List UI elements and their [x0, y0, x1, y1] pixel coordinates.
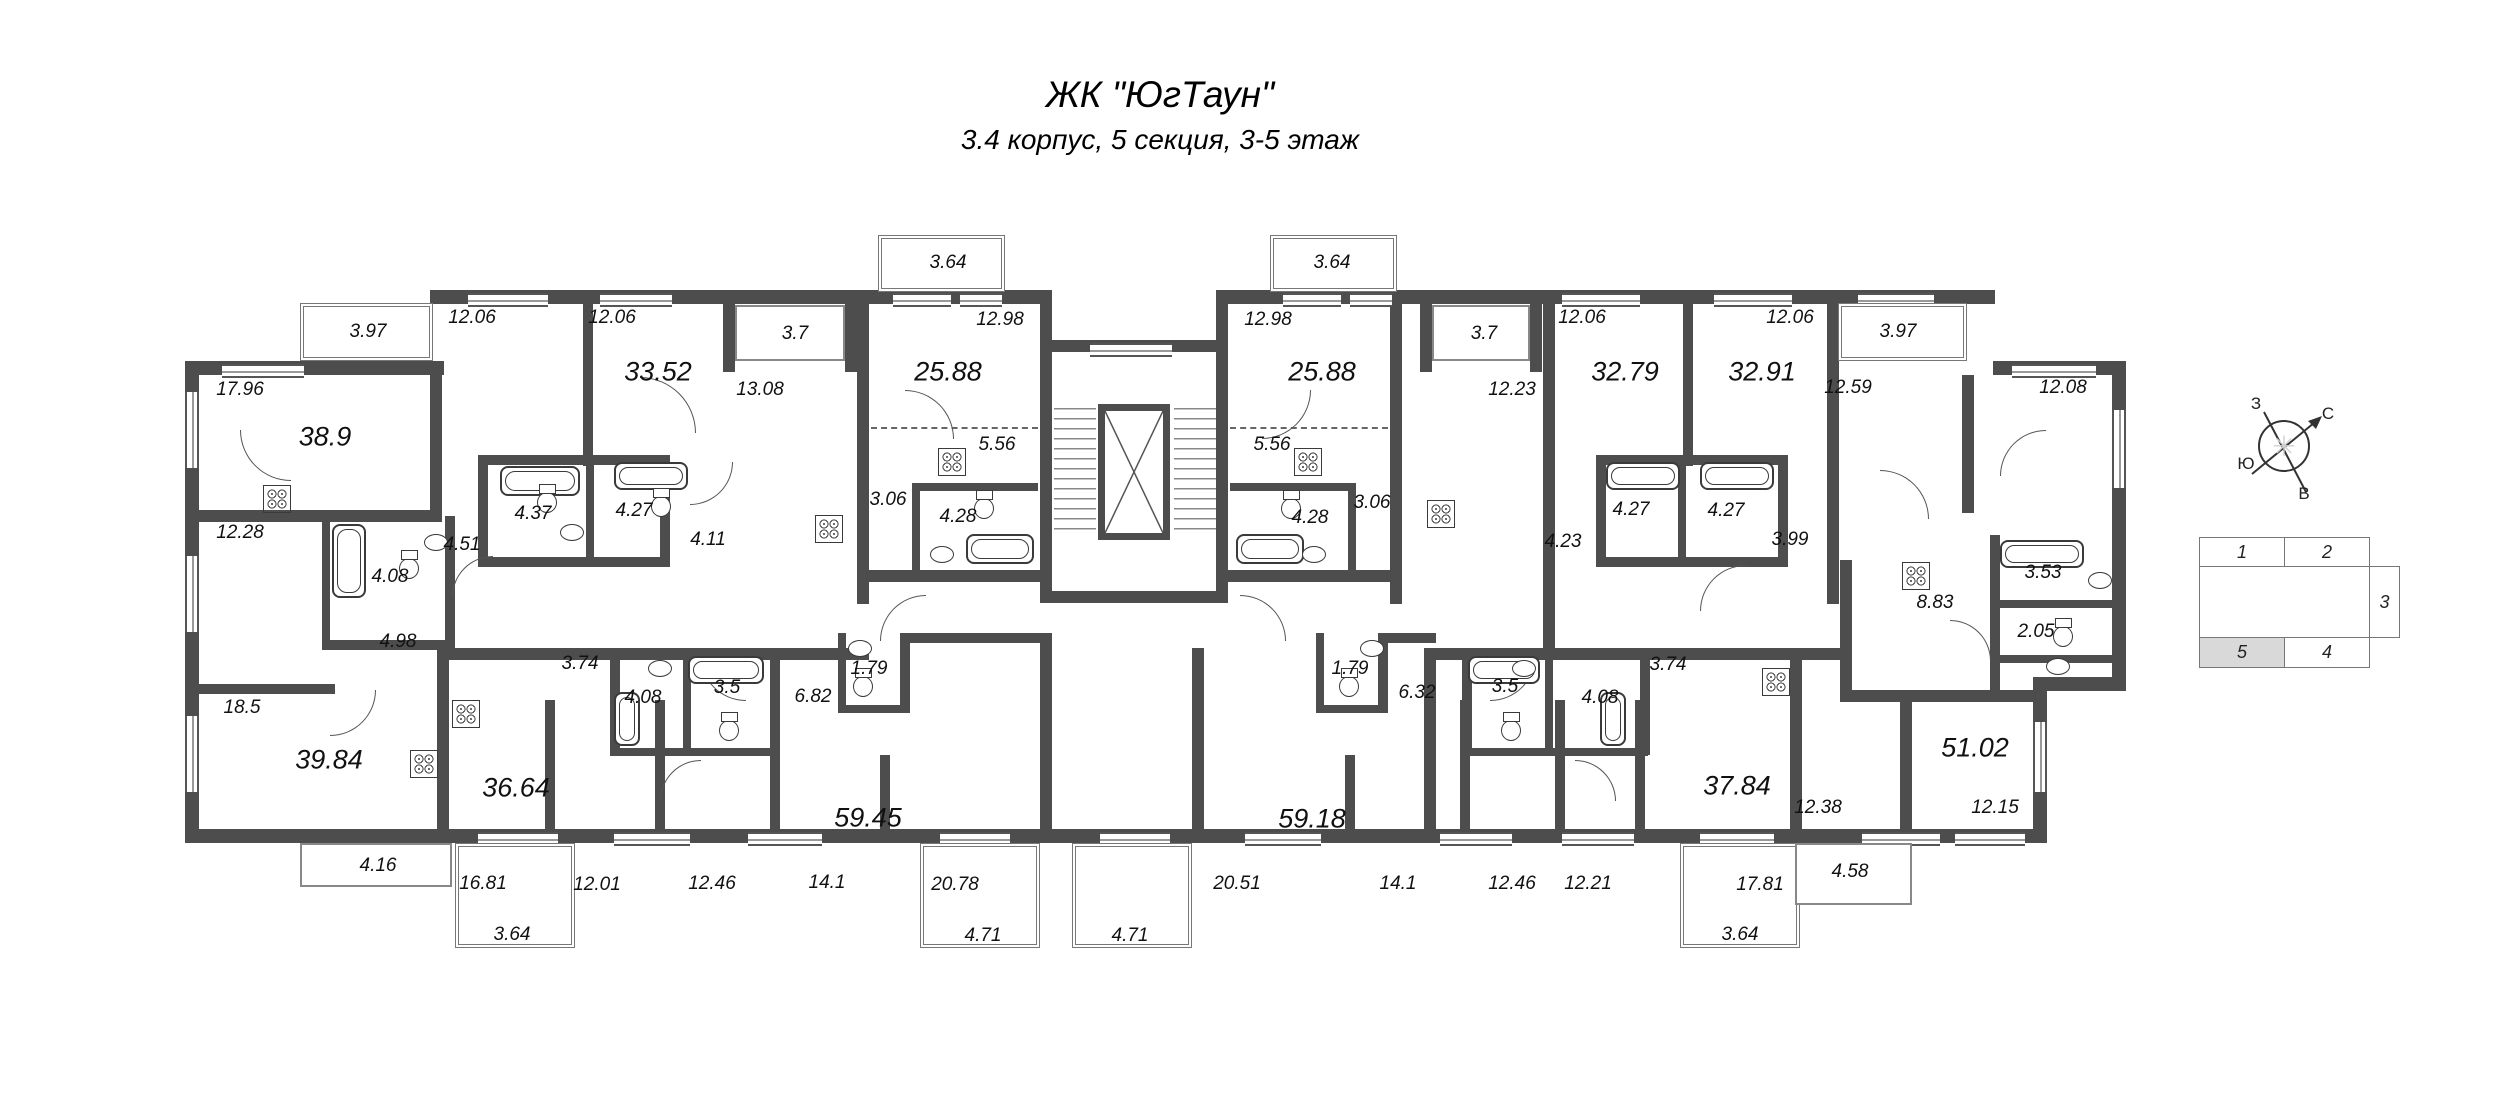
area-label: 6.32	[1399, 682, 1436, 704]
area-label: 4.37	[515, 503, 552, 525]
area-label: 36.64	[482, 773, 550, 804]
wall-segment	[586, 455, 594, 557]
area-label: 4.98	[380, 631, 417, 653]
door-arc	[1262, 390, 1311, 439]
area-label: 12.06	[1766, 307, 1814, 329]
sink-icon	[648, 660, 672, 677]
door-arc	[240, 430, 291, 481]
door-arc	[1950, 620, 1991, 661]
area-label: 3.53	[2025, 562, 2062, 584]
wall-segment	[322, 516, 330, 646]
wall-segment	[770, 700, 780, 830]
area-label: 14.1	[1380, 873, 1417, 895]
wall-segment	[1900, 690, 1912, 830]
area-label: 3.5	[1492, 676, 1518, 698]
area-label: 4.08	[1582, 687, 1619, 709]
bathtub-icon	[614, 462, 688, 490]
wall-segment	[2033, 677, 2126, 691]
window	[1440, 832, 1512, 846]
area-label: 17.96	[216, 379, 264, 401]
area-label: 32.79	[1591, 357, 1659, 388]
area-label: 3.64	[1314, 252, 1351, 274]
area-label: 1.79	[1332, 658, 1369, 680]
window	[1350, 293, 1392, 307]
area-label: 25.88	[1288, 357, 1356, 388]
sink-icon	[1512, 660, 1536, 677]
window	[2112, 410, 2126, 488]
wall-segment	[838, 633, 846, 713]
wall-segment	[1840, 560, 1852, 690]
window	[1562, 832, 1634, 846]
section-4: 4	[2284, 637, 2370, 668]
wall-segment	[723, 304, 735, 372]
wall-segment	[1216, 290, 1228, 603]
wall-segment	[1596, 557, 1788, 567]
wall-segment	[1555, 700, 1565, 830]
section-5-highlighted: 5	[2199, 637, 2285, 668]
sink-icon	[2088, 572, 2112, 589]
area-label: 3.74	[1650, 654, 1687, 676]
area-label: 33.52	[624, 357, 692, 388]
stove-icon	[410, 750, 438, 778]
wall-segment	[1962, 375, 1974, 513]
page-subtitle: 3.4 корпус, 5 секция, 3-5 этаж	[961, 124, 1359, 156]
window	[1955, 832, 2025, 846]
wall-segment	[1040, 591, 1228, 603]
bathtub-icon	[1606, 462, 1680, 490]
wall-segment	[1990, 535, 2000, 690]
window	[185, 716, 199, 792]
toilet-icon	[650, 488, 672, 516]
area-label: 5.56	[979, 434, 1016, 456]
area-label: 12.15	[1971, 797, 2019, 819]
area-label: 5.56	[1254, 434, 1291, 456]
area-label: 4.08	[372, 566, 409, 588]
section-key-diagram: 1 2 3 5 4	[2199, 537, 2401, 668]
window	[1562, 293, 1640, 307]
wall-segment	[185, 684, 335, 694]
window	[2012, 364, 2096, 378]
window	[185, 556, 199, 632]
stair-steps	[1054, 408, 1096, 538]
sink-icon	[1360, 640, 1384, 657]
toilet-icon	[718, 712, 740, 740]
window	[222, 364, 304, 378]
wall-segment	[437, 648, 449, 830]
area-label: 1.79	[851, 658, 888, 680]
area-label: 20.51	[1213, 873, 1261, 895]
wall-segment	[1390, 304, 1402, 604]
area-label: 32.91	[1728, 357, 1796, 388]
area-label: 6.82	[795, 686, 832, 708]
compass-south-label: Ю	[2237, 454, 2254, 474]
wall-segment	[545, 700, 555, 830]
area-label: 3.64	[494, 924, 531, 946]
area-label: 4.28	[1292, 507, 1329, 529]
area-label: 16.81	[459, 873, 507, 895]
stove-icon	[1762, 668, 1790, 696]
wall-segment	[912, 483, 920, 570]
bathtub-icon	[966, 534, 1034, 564]
stair-steps	[1174, 408, 1216, 538]
wall-segment	[1596, 465, 1606, 557]
bathtub-icon	[1700, 462, 1774, 490]
wall-segment	[1990, 600, 2112, 608]
window	[1283, 293, 1341, 307]
wall-segment	[1543, 304, 1555, 650]
stove-icon	[815, 515, 843, 543]
area-label: 3.74	[562, 653, 599, 675]
toilet-icon	[1500, 712, 1522, 740]
section-1: 1	[2199, 537, 2285, 567]
area-label: 14.1	[809, 872, 846, 894]
area-label: 12.46	[688, 873, 736, 895]
wall-segment	[610, 748, 780, 756]
compass-east-label: В	[2298, 484, 2309, 504]
window	[2033, 722, 2047, 792]
area-label: 4.58	[1832, 861, 1869, 883]
wall-segment	[1683, 304, 1693, 466]
door-arc	[880, 595, 926, 641]
stove-icon	[263, 485, 291, 513]
area-label: 12.98	[1244, 309, 1292, 331]
area-label: 17.81	[1736, 874, 1784, 896]
area-label: 3.06	[870, 489, 907, 511]
area-label: 12.38	[1794, 797, 1842, 819]
area-label: 3.06	[1354, 492, 1391, 514]
wall-segment	[1530, 304, 1542, 372]
svg-text:✳: ✳	[2272, 430, 2295, 463]
window	[600, 293, 672, 307]
bathtub-icon	[332, 524, 366, 598]
area-label: 3.64	[930, 252, 967, 274]
area-label: 12.01	[573, 874, 621, 896]
wall-segment	[655, 700, 665, 830]
area-label: 12.98	[976, 309, 1024, 331]
toilet-icon	[2052, 618, 2074, 646]
window	[468, 293, 548, 307]
stove-icon	[1902, 562, 1930, 590]
wall-segment	[1040, 633, 1052, 830]
window	[614, 832, 690, 846]
compass-rose: ✳ З С Ю В	[2240, 398, 2340, 508]
door-arc	[1240, 595, 1286, 641]
wall-segment	[1424, 648, 1436, 830]
wall-segment	[1635, 700, 1645, 830]
area-label: 12.06	[588, 307, 636, 329]
window	[960, 293, 1002, 307]
wall-segment	[1228, 570, 1390, 582]
sink-icon	[2046, 658, 2070, 675]
door-arc	[1880, 470, 1929, 519]
area-label: 12.46	[1488, 873, 1536, 895]
area-label: 4.71	[1112, 925, 1149, 947]
window	[185, 392, 199, 468]
wall-segment	[430, 361, 442, 513]
door-arc	[905, 390, 954, 439]
wall-segment	[1460, 700, 1470, 830]
area-label: 4.27	[616, 500, 653, 522]
stove-icon	[1427, 500, 1455, 528]
area-label: 12.06	[1558, 307, 1606, 329]
wall-segment	[1316, 633, 1324, 713]
stove-icon	[938, 448, 966, 476]
area-label: 4.28	[940, 506, 977, 528]
area-label: 8.83	[1917, 592, 1954, 614]
wall-segment	[1316, 705, 1388, 713]
sink-icon	[560, 524, 584, 541]
section-key-body	[2199, 566, 2370, 638]
area-label: 4.27	[1708, 500, 1745, 522]
door-arc	[452, 556, 493, 597]
window	[748, 832, 822, 846]
area-label: 3.5	[714, 677, 740, 699]
wall-segment	[869, 570, 1040, 582]
area-label: 37.84	[1703, 771, 1771, 802]
area-label: 39.84	[295, 745, 363, 776]
area-label: 12.28	[216, 522, 264, 544]
area-label: 25.88	[914, 357, 982, 388]
area-label: 3.97	[1880, 321, 1917, 343]
bathtub-icon	[1236, 534, 1304, 564]
area-label: 3.7	[782, 323, 808, 345]
door-arc	[690, 462, 733, 505]
area-label: 12.06	[448, 307, 496, 329]
wall-segment	[845, 304, 857, 372]
door-arc	[2000, 430, 2046, 476]
wall-segment	[838, 705, 910, 713]
stove-icon	[452, 700, 480, 728]
zone-divider	[1230, 427, 1388, 429]
area-label: 38.9	[299, 422, 352, 453]
area-label: 12.59	[1824, 377, 1872, 399]
wall-segment	[857, 304, 869, 604]
wall-segment	[1345, 755, 1355, 830]
wall-segment	[1840, 690, 2035, 702]
area-label: 3.7	[1471, 323, 1497, 345]
wall-segment	[197, 510, 442, 522]
area-label: 4.11	[690, 529, 726, 551]
section-3: 3	[2369, 566, 2400, 638]
wall-segment	[1192, 648, 1204, 830]
area-label: 4.16	[360, 855, 397, 877]
area-label: 3.64	[1722, 924, 1759, 946]
compass-north-label: С	[2322, 404, 2334, 424]
area-label: 12.21	[1564, 873, 1612, 895]
area-label: 59.45	[834, 803, 902, 834]
wall-segment	[900, 633, 910, 713]
elevator	[1098, 404, 1170, 540]
area-label: 2.05	[2018, 621, 2055, 643]
wall-segment	[1545, 650, 1553, 755]
area-label: 20.78	[931, 874, 979, 896]
area-label: 13.08	[736, 379, 784, 401]
stove-icon	[1294, 448, 1322, 476]
window	[893, 293, 951, 307]
zone-divider	[871, 427, 1038, 429]
floor-plan-page: ЖК "ЮгТаун" 3.4 корпус, 5 секция, 3-5 эт…	[0, 0, 2500, 1104]
wall-segment	[478, 557, 670, 567]
area-label: 12.23	[1488, 379, 1536, 401]
area-label: 3.97	[350, 321, 387, 343]
door-arc	[1575, 760, 1616, 801]
window	[1714, 293, 1792, 307]
area-label: 12.08	[2039, 377, 2087, 399]
area-label: 3.99	[1772, 529, 1809, 551]
door-arc	[660, 760, 701, 801]
wall-segment	[437, 648, 869, 660]
compass-west-label: З	[2251, 394, 2261, 414]
sink-icon	[930, 546, 954, 563]
area-label: 51.02	[1941, 733, 2009, 764]
area-label: 4.51	[444, 534, 481, 556]
window	[1090, 343, 1172, 357]
sink-icon	[1302, 546, 1326, 563]
area-label: 4.27	[1613, 499, 1650, 521]
sink-icon	[848, 640, 872, 657]
section-2: 2	[2284, 537, 2370, 567]
wall-segment	[1420, 304, 1432, 372]
area-label: 4.08	[625, 687, 662, 709]
area-label: 18.5	[224, 697, 261, 719]
door-arc	[1700, 565, 1746, 611]
door-arc	[330, 690, 376, 736]
area-label: 59.18	[1278, 804, 1346, 835]
wall-segment	[1040, 290, 1052, 603]
area-label: 4.23	[1545, 531, 1582, 553]
area-label: 4.71	[965, 925, 1002, 947]
page-title: ЖК "ЮгТаун"	[1046, 74, 1274, 116]
